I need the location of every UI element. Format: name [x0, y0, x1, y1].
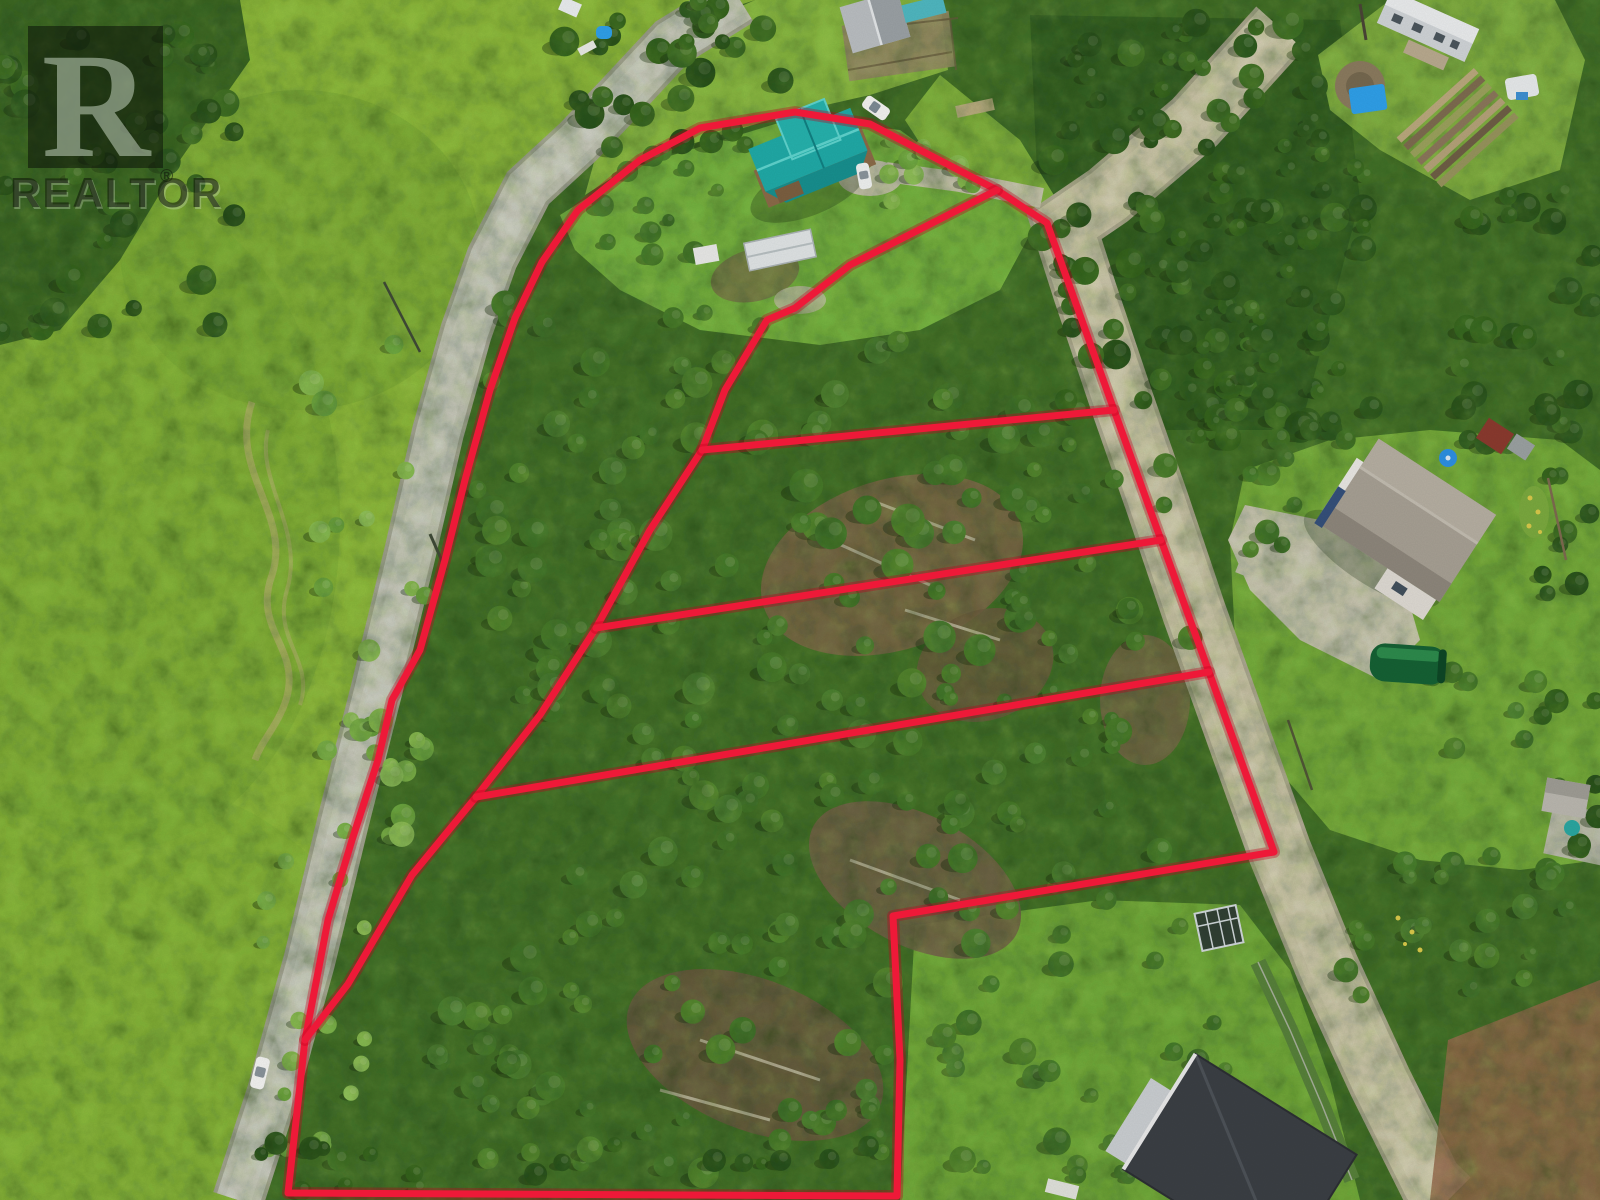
realtor-logo-letter: R [42, 23, 152, 189]
registered-symbol: ® [160, 166, 173, 186]
aerial-listing-photo: R REALTOR REALTOR ® [0, 0, 1600, 1200]
scene-canvas: R REALTOR REALTOR ® [0, 0, 1600, 1200]
realtor-wordmark: REALTOR [10, 169, 223, 216]
